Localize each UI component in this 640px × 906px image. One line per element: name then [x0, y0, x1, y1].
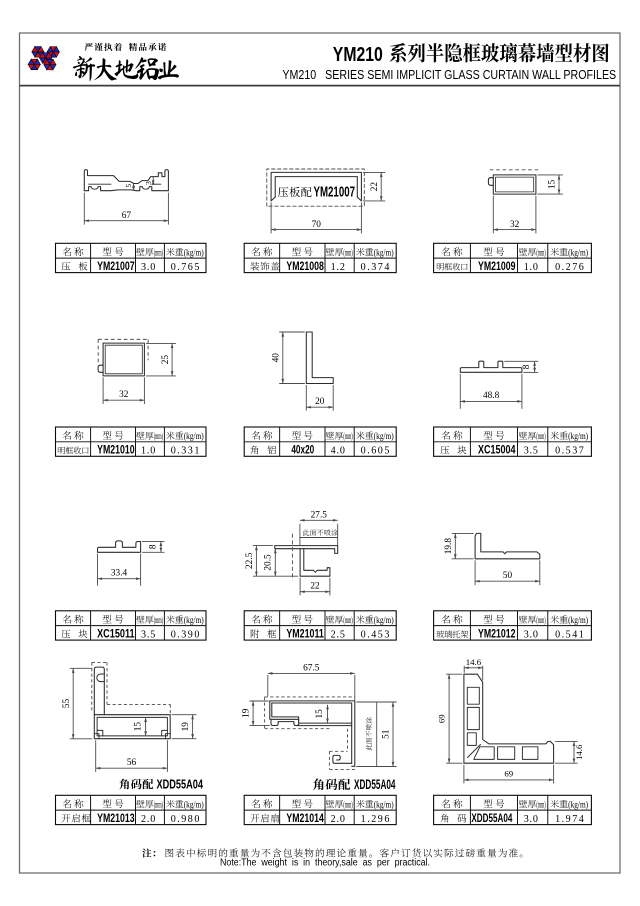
svg-text:40x20: 40x20	[291, 445, 314, 457]
svg-text:1.974: 1.974	[555, 814, 585, 825]
svg-text:(mm): (mm)	[536, 800, 546, 810]
svg-text:(kg/m): (kg/m)	[374, 800, 394, 810]
svg-text:3.0: 3.0	[524, 814, 539, 825]
svg-text:XDD55A04: XDD55A04	[354, 777, 396, 793]
svg-text:XC15011: XC15011	[97, 628, 135, 640]
svg-text:(mm): (mm)	[536, 431, 546, 441]
svg-text:(mm): (mm)	[343, 431, 353, 441]
svg-text:(mm): (mm)	[154, 800, 164, 810]
svg-text:YM21009: YM21009	[478, 261, 516, 273]
svg-text:(mm): (mm)	[343, 248, 353, 258]
svg-text:20: 20	[315, 397, 325, 407]
svg-text:19: 19	[181, 722, 191, 732]
svg-text:XDD55A04: XDD55A04	[157, 776, 204, 791]
svg-text:(mm): (mm)	[536, 248, 546, 258]
svg-text:51: 51	[382, 729, 392, 739]
svg-text:(kg/m): (kg/m)	[374, 615, 394, 625]
svg-text:(mm): (mm)	[536, 615, 546, 625]
svg-text:YM21014: YM21014	[286, 813, 324, 825]
svg-text:(mm): (mm)	[154, 615, 164, 625]
svg-text:2.0: 2.0	[141, 814, 156, 825]
svg-text:(mm): (mm)	[154, 248, 164, 258]
svg-text:20.5: 20.5	[263, 554, 273, 571]
svg-text:8: 8	[149, 544, 159, 549]
svg-text:15: 15	[315, 709, 325, 719]
svg-text:3.5: 3.5	[524, 446, 539, 457]
svg-text:3.0: 3.0	[524, 629, 539, 640]
svg-text:25: 25	[161, 355, 171, 365]
svg-text:19: 19	[242, 708, 252, 718]
svg-text:(kg/m): (kg/m)	[184, 431, 204, 441]
svg-text:15: 15	[133, 722, 143, 732]
svg-text:0.331: 0.331	[171, 446, 201, 457]
svg-text:32: 32	[119, 390, 129, 400]
svg-text:(kg/m): (kg/m)	[568, 431, 588, 441]
svg-text:1.296: 1.296	[361, 814, 391, 825]
svg-text:48.8: 48.8	[483, 391, 500, 401]
svg-text:8: 8	[522, 364, 532, 369]
svg-text:22.5: 22.5	[245, 552, 255, 569]
svg-text:2.5: 2.5	[331, 629, 346, 640]
svg-text:YM21007: YM21007	[314, 183, 356, 200]
svg-text:(kg/m): (kg/m)	[568, 248, 588, 258]
svg-text:0.765: 0.765	[171, 262, 201, 273]
svg-text:(kg/m): (kg/m)	[568, 615, 588, 625]
svg-text:0.390: 0.390	[171, 629, 201, 640]
svg-text:0.374: 0.374	[361, 262, 391, 273]
svg-text:55: 55	[62, 699, 72, 709]
svg-text:4.0: 4.0	[331, 446, 346, 457]
svg-text:(mm): (mm)	[343, 615, 353, 625]
svg-text:3: 3	[144, 181, 153, 185]
svg-text:YM21010: YM21010	[97, 445, 135, 457]
svg-text:1.0: 1.0	[141, 446, 156, 457]
svg-text:(kg/m): (kg/m)	[374, 431, 394, 441]
svg-text:Note:The weight is in theo: Note:The weight is in theory,sale as per…	[220, 857, 430, 868]
svg-text:2.0: 2.0	[331, 814, 346, 825]
svg-text:40: 40	[272, 353, 282, 363]
svg-text:YM210 SERIES SEMI IMPLICIT G: YM210 SERIES SEMI IMPLICIT GLASS CURTAIN…	[282, 67, 616, 82]
svg-text:YM21013: YM21013	[97, 813, 135, 825]
svg-text:YM21007: YM21007	[97, 261, 135, 273]
svg-text:(kg/m): (kg/m)	[184, 800, 204, 810]
svg-text:32: 32	[510, 220, 520, 230]
svg-text:0.276: 0.276	[555, 262, 585, 273]
svg-text:19.8: 19.8	[444, 538, 454, 555]
svg-text:YM21011: YM21011	[286, 628, 324, 640]
svg-text:YM210: YM210	[333, 43, 383, 66]
svg-text:0.605: 0.605	[361, 446, 391, 457]
svg-text:5: 5	[124, 184, 133, 188]
svg-text:XC15004: XC15004	[478, 445, 516, 457]
svg-text:0.541: 0.541	[555, 629, 585, 640]
svg-text:(mm): (mm)	[343, 800, 353, 810]
svg-text:33.4: 33.4	[111, 568, 128, 578]
svg-text:(kg/m): (kg/m)	[184, 615, 204, 625]
svg-text:YM21008: YM21008	[286, 261, 324, 273]
svg-text:70: 70	[312, 220, 322, 230]
svg-text:0.453: 0.453	[361, 629, 391, 640]
svg-text:XDD55A04: XDD55A04	[471, 813, 512, 825]
svg-text:14.6: 14.6	[466, 657, 482, 667]
svg-text:15: 15	[548, 180, 558, 190]
svg-text:69: 69	[504, 769, 513, 779]
svg-text:22: 22	[310, 582, 320, 592]
svg-text:27.5: 27.5	[311, 510, 328, 520]
svg-text:YM21012: YM21012	[478, 628, 516, 640]
svg-text:(kg/m): (kg/m)	[374, 248, 394, 258]
svg-text:1.2: 1.2	[331, 262, 346, 273]
svg-text:14.6: 14.6	[574, 744, 584, 760]
svg-text:50: 50	[503, 571, 513, 581]
svg-text:67: 67	[122, 211, 132, 221]
svg-text:67.5: 67.5	[303, 663, 320, 673]
svg-text:3.5: 3.5	[141, 629, 156, 640]
svg-text:56: 56	[127, 758, 137, 768]
svg-text:22: 22	[370, 182, 380, 192]
svg-text:3.0: 3.0	[141, 262, 156, 273]
svg-text:(kg/m): (kg/m)	[184, 248, 204, 258]
svg-text:(kg/m): (kg/m)	[568, 800, 588, 810]
svg-text:0.980: 0.980	[171, 814, 201, 825]
svg-text:(mm): (mm)	[154, 431, 164, 441]
svg-text:1.0: 1.0	[524, 262, 539, 273]
svg-text:0.537: 0.537	[555, 446, 585, 457]
svg-text:69: 69	[437, 714, 447, 723]
